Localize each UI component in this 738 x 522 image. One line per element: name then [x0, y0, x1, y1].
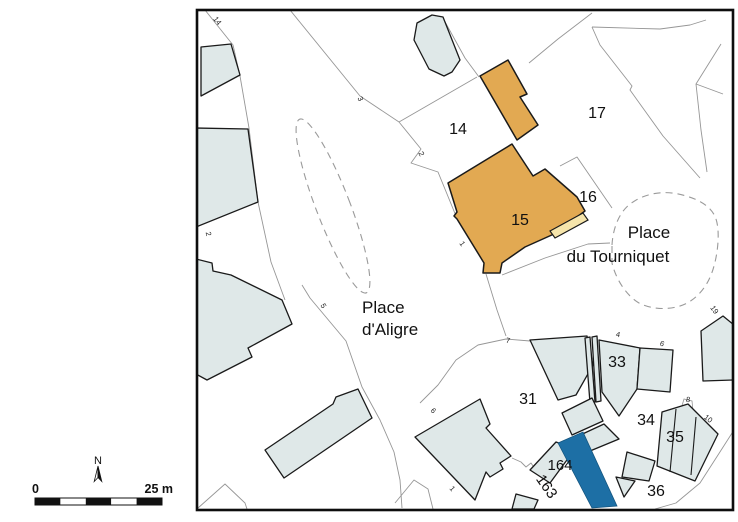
north-label: N [94, 455, 102, 467]
parcel-label-33: 33 [608, 354, 626, 371]
parcel-label-15: 15 [511, 212, 529, 229]
place-tourniquet-label-line1: Place [628, 223, 671, 242]
parcel-label-17: 17 [588, 105, 606, 122]
building [637, 348, 673, 392]
north-needle-right [98, 466, 102, 482]
scale-start-label: 0 [32, 482, 39, 496]
scale-end-label: 25 m [145, 482, 174, 496]
map-figure: 14 17 15 16 31 33 34 35 36 164 163 14 3 … [0, 0, 738, 522]
north-needle-left [94, 466, 98, 482]
north-arrow: N [94, 455, 102, 482]
scale-segment [60, 498, 85, 505]
parcel-label-16: 16 [579, 189, 597, 206]
place-tourniquet-label-line2: du Tourniquet [567, 247, 670, 266]
scale-bar: 0 25 m [32, 482, 173, 505]
parcel-label-34: 34 [637, 412, 655, 429]
parcel-label-14: 14 [449, 121, 467, 138]
place-daligre-label-line1: Place [362, 298, 405, 317]
parcel-label-31: 31 [519, 391, 537, 408]
scale-segment [86, 498, 111, 505]
place-daligre-label-line2: d'Aligre [362, 320, 418, 339]
map-canvas: 14 17 15 16 31 33 34 35 36 164 163 14 3 … [0, 0, 738, 522]
scale-segment [111, 498, 136, 505]
parcel-label-36: 36 [647, 483, 665, 500]
parcel-label-35: 35 [666, 429, 684, 446]
parcel-label-164: 164 [547, 457, 572, 474]
scale-segment [35, 498, 60, 505]
scale-segment [137, 498, 162, 505]
